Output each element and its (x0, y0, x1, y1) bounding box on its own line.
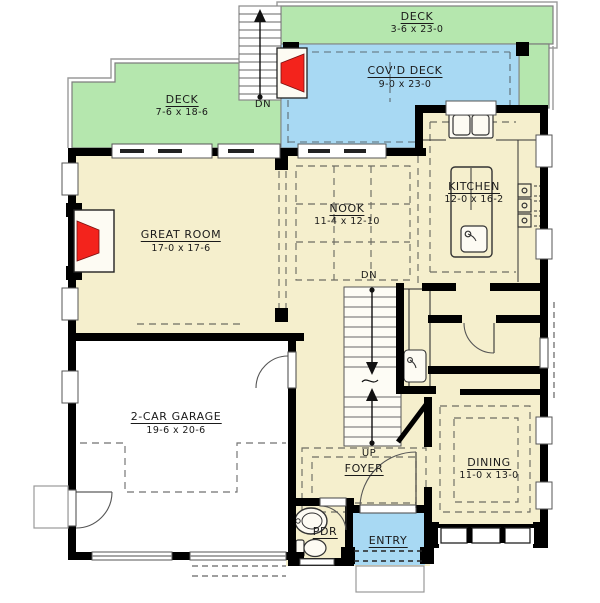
foyer-label: FOYER (345, 462, 384, 476)
deck-stairs-dn-label: DN (255, 99, 271, 110)
kitchen-dims: 12-0 x 16-2 (444, 194, 503, 205)
main-stairs (344, 287, 401, 446)
floor-plan-drawing (0, 0, 600, 603)
great-room-dims: 17-0 x 17-6 (151, 243, 210, 254)
dining-label: DINING (467, 456, 511, 470)
kitchen-label: KITCHEN (448, 180, 500, 194)
floor-plan: DECK 3-6 x 23-0 COV'D DECK 9-0 x 23-0 DE… (0, 0, 600, 603)
deck-left-label: DECK (166, 93, 199, 107)
deck-stairs (239, 6, 281, 100)
pdr-label: PDR (313, 525, 338, 539)
garage-side-landing (34, 486, 68, 528)
covd-deck-dims: 9-0 x 23-0 (379, 79, 432, 90)
deck-left-dims: 7-6 x 18-6 (156, 107, 209, 118)
basement-stairs-dn-label: DN (361, 270, 377, 281)
garage-floor (76, 341, 288, 552)
stairs-up-label: UP (362, 448, 376, 459)
entry-label: ENTRY (369, 534, 408, 548)
deck-top-label: DECK (401, 10, 434, 24)
garage-dims: 19-6 x 20-6 (146, 425, 205, 436)
great-room-label: GREAT ROOM (141, 228, 221, 242)
dining-dims: 11-0 x 13-0 (459, 470, 518, 481)
deck-top-dims: 3-6 x 23-0 (391, 24, 444, 35)
nook-label: NOOK (329, 202, 364, 216)
deck-fireplace (277, 48, 307, 98)
nook-dims: 11-4 x 12-10 (314, 216, 380, 227)
covd-deck-label: COV'D DECK (368, 64, 443, 78)
garage-label: 2-CAR GARAGE (131, 410, 222, 424)
dining-bay-windows (438, 528, 534, 544)
